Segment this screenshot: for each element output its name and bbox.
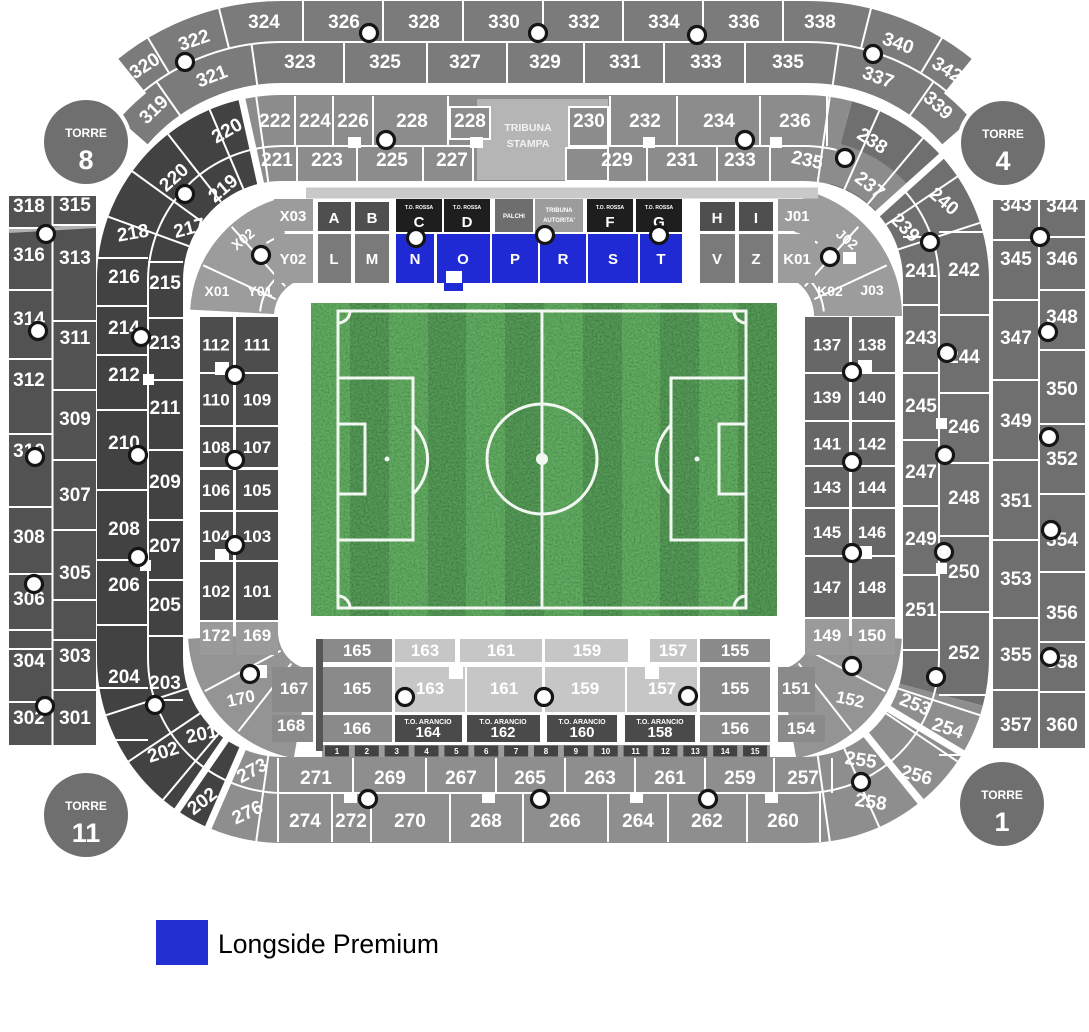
svg-text:149: 149 (813, 626, 841, 645)
svg-text:P: P (510, 251, 520, 268)
svg-text:270: 270 (394, 811, 426, 832)
svg-text:105: 105 (243, 481, 271, 500)
svg-text:260: 260 (767, 811, 799, 832)
svg-text:137: 137 (813, 336, 841, 355)
svg-text:156: 156 (721, 719, 749, 738)
svg-text:O: O (457, 251, 469, 268)
svg-text:112: 112 (202, 336, 229, 355)
svg-text:304: 304 (13, 651, 45, 672)
svg-text:PALCHI: PALCHI (503, 214, 525, 220)
svg-text:147: 147 (813, 578, 841, 597)
svg-text:13: 13 (691, 747, 700, 756)
svg-text:159: 159 (571, 679, 599, 698)
svg-text:241: 241 (905, 261, 937, 282)
svg-text:R: R (558, 251, 569, 268)
svg-text:204: 204 (108, 667, 140, 688)
svg-text:8: 8 (544, 747, 549, 756)
svg-text:J01: J01 (784, 208, 809, 225)
svg-text:T.O. ROSSA: T.O. ROSSA (645, 205, 674, 211)
svg-text:233: 233 (724, 150, 756, 171)
svg-text:111: 111 (244, 336, 271, 355)
svg-text:323: 323 (284, 52, 316, 73)
svg-text:251: 251 (905, 600, 937, 621)
svg-text:263: 263 (584, 768, 616, 789)
svg-text:351: 351 (1000, 491, 1032, 512)
svg-text:247: 247 (905, 462, 937, 483)
svg-text:308: 308 (13, 527, 45, 548)
svg-text:246: 246 (948, 417, 980, 438)
svg-text:TRIBUNA: TRIBUNA (546, 208, 574, 214)
svg-text:146: 146 (858, 523, 886, 542)
svg-text:232: 232 (629, 111, 661, 132)
svg-text:T.O. ROSSA: T.O. ROSSA (596, 205, 625, 211)
svg-text:255: 255 (844, 748, 879, 773)
svg-text:4: 4 (424, 747, 429, 756)
svg-text:226: 226 (337, 111, 369, 132)
svg-text:360: 360 (1046, 715, 1078, 736)
svg-text:T.O. ROSSA: T.O. ROSSA (453, 205, 482, 211)
svg-text:144: 144 (858, 478, 887, 497)
svg-text:TORRE: TORRE (982, 127, 1024, 141)
svg-text:336: 336 (728, 12, 760, 33)
svg-text:139: 139 (813, 388, 841, 407)
svg-text:252: 252 (948, 643, 980, 664)
svg-text:110: 110 (202, 391, 229, 410)
svg-text:12: 12 (661, 747, 670, 756)
svg-text:243: 243 (905, 328, 937, 349)
svg-text:103: 103 (243, 527, 271, 546)
svg-text:151: 151 (782, 679, 810, 698)
svg-text:258: 258 (854, 790, 888, 815)
svg-text:324: 324 (248, 12, 280, 33)
svg-text:231: 231 (666, 150, 698, 171)
svg-text:158: 158 (647, 724, 672, 741)
svg-text:229: 229 (601, 150, 633, 171)
svg-text:T: T (656, 251, 665, 268)
svg-text:266: 266 (549, 811, 581, 832)
svg-text:265: 265 (514, 768, 546, 789)
svg-text:141: 141 (813, 435, 841, 454)
svg-text:211: 211 (150, 398, 181, 419)
svg-text:8: 8 (78, 145, 93, 175)
svg-text:161: 161 (490, 679, 518, 698)
svg-text:K02: K02 (817, 283, 843, 299)
svg-text:347: 347 (1000, 328, 1032, 349)
svg-text:K01: K01 (783, 251, 811, 268)
svg-text:257: 257 (787, 768, 819, 789)
svg-text:225: 225 (376, 150, 408, 171)
svg-text:349: 349 (1000, 411, 1032, 432)
svg-text:228: 228 (396, 111, 428, 132)
svg-text:206: 206 (108, 575, 140, 596)
svg-text:216: 216 (108, 267, 140, 288)
svg-text:215: 215 (149, 273, 181, 294)
svg-text:143: 143 (813, 478, 841, 497)
svg-text:261: 261 (654, 768, 686, 789)
svg-text:6: 6 (484, 747, 489, 756)
svg-text:J03: J03 (860, 282, 884, 298)
svg-text:325: 325 (369, 52, 401, 73)
svg-text:227: 227 (436, 150, 468, 171)
svg-text:344: 344 (1046, 196, 1078, 217)
svg-text:332: 332 (568, 12, 600, 33)
svg-text:172: 172 (202, 626, 230, 645)
svg-text:208: 208 (108, 519, 140, 540)
svg-text:250: 250 (948, 562, 980, 583)
svg-text:262: 262 (691, 811, 723, 832)
svg-text:2: 2 (365, 747, 370, 756)
svg-text:268: 268 (470, 811, 502, 832)
svg-text:311: 311 (60, 328, 91, 349)
svg-text:343: 343 (1000, 195, 1032, 216)
svg-text:Y01: Y01 (248, 283, 273, 299)
svg-text:328: 328 (408, 12, 440, 33)
svg-text:209: 209 (149, 472, 181, 493)
svg-text:165: 165 (343, 679, 371, 698)
svg-text:221: 221 (261, 150, 293, 171)
svg-text:157: 157 (659, 641, 687, 660)
svg-text:346: 346 (1046, 249, 1078, 270)
svg-text:318: 318 (13, 196, 45, 217)
svg-text:AUTORITA': AUTORITA' (543, 218, 575, 224)
svg-text:326: 326 (328, 12, 360, 33)
svg-text:7: 7 (514, 747, 519, 756)
svg-text:303: 303 (59, 646, 91, 667)
svg-text:11: 11 (72, 818, 101, 848)
svg-text:236: 236 (779, 111, 811, 132)
svg-text:264: 264 (622, 811, 654, 832)
svg-text:312: 312 (13, 370, 45, 391)
svg-text:242: 242 (948, 260, 980, 281)
svg-text:338: 338 (804, 12, 836, 33)
svg-text:TRIBUNA: TRIBUNA (504, 122, 552, 134)
svg-text:356: 356 (1046, 603, 1078, 624)
svg-text:Z: Z (751, 251, 760, 268)
svg-text:F: F (605, 214, 614, 231)
svg-text:169: 169 (243, 626, 271, 645)
svg-text:S: S (608, 251, 618, 268)
svg-text:269: 269 (374, 768, 406, 789)
svg-text:203: 203 (149, 673, 181, 694)
svg-text:9: 9 (574, 747, 579, 756)
svg-text:X01: X01 (205, 283, 230, 299)
svg-text:106: 106 (202, 481, 230, 500)
svg-text:305: 305 (59, 563, 91, 584)
svg-text:307: 307 (59, 485, 91, 506)
svg-text:163: 163 (416, 679, 444, 698)
svg-text:267: 267 (445, 768, 477, 789)
svg-text:168: 168 (277, 716, 305, 735)
svg-text:271: 271 (300, 768, 332, 789)
svg-text:223: 223 (311, 150, 343, 171)
svg-text:334: 334 (648, 12, 680, 33)
svg-text:B: B (367, 210, 378, 227)
svg-text:222: 222 (259, 111, 291, 132)
svg-text:159: 159 (573, 641, 601, 660)
svg-text:165: 165 (343, 641, 371, 660)
svg-text:X03: X03 (280, 208, 307, 225)
svg-text:309: 309 (59, 409, 91, 430)
svg-text:316: 316 (13, 245, 45, 266)
svg-text:353: 353 (1000, 569, 1032, 590)
svg-text:157: 157 (648, 679, 676, 698)
svg-text:335: 335 (772, 52, 804, 73)
svg-text:4: 4 (995, 146, 1010, 176)
svg-text:228: 228 (454, 111, 486, 132)
svg-text:138: 138 (858, 336, 886, 355)
svg-text:5: 5 (454, 747, 459, 756)
svg-text:STAMPA: STAMPA (507, 138, 550, 150)
svg-text:352: 352 (1046, 449, 1078, 470)
svg-text:L: L (329, 251, 338, 268)
svg-text:3: 3 (394, 747, 399, 756)
svg-text:167: 167 (280, 679, 308, 698)
svg-text:315: 315 (59, 195, 91, 216)
svg-text:108: 108 (202, 438, 230, 457)
svg-text:207: 207 (149, 536, 181, 557)
svg-text:I: I (754, 210, 758, 227)
svg-text:205: 205 (149, 595, 181, 616)
svg-text:213: 213 (149, 333, 181, 354)
svg-text:T.O. ROSSA: T.O. ROSSA (405, 205, 434, 211)
svg-text:245: 245 (905, 396, 937, 417)
svg-text:155: 155 (721, 641, 749, 660)
svg-text:230: 230 (573, 111, 605, 132)
svg-text:330: 330 (488, 12, 520, 33)
svg-text:V: V (712, 251, 722, 268)
svg-text:355: 355 (1000, 645, 1032, 666)
svg-text:145: 145 (813, 523, 841, 542)
svg-text:109: 109 (243, 391, 271, 410)
svg-text:249: 249 (905, 529, 937, 550)
svg-text:148: 148 (858, 578, 886, 597)
svg-text:1: 1 (335, 747, 340, 756)
svg-text:160: 160 (569, 724, 594, 741)
svg-text:212: 212 (108, 365, 140, 386)
svg-text:164: 164 (415, 724, 441, 741)
svg-text:248: 248 (948, 488, 980, 509)
svg-text:A: A (329, 210, 340, 227)
svg-text:301: 301 (59, 708, 91, 729)
svg-text:259: 259 (724, 768, 756, 789)
svg-text:15: 15 (751, 747, 760, 756)
svg-text:N: N (410, 251, 421, 268)
svg-text:272: 272 (335, 811, 367, 832)
svg-text:329: 329 (529, 52, 561, 73)
svg-text:161: 161 (487, 641, 515, 660)
svg-text:163: 163 (411, 641, 439, 660)
svg-text:142: 142 (858, 435, 886, 454)
svg-text:TORRE: TORRE (981, 788, 1023, 802)
svg-text:107: 107 (243, 438, 271, 457)
svg-text:162: 162 (490, 724, 515, 741)
svg-text:14: 14 (721, 747, 730, 756)
svg-text:1: 1 (994, 807, 1009, 837)
svg-text:D: D (462, 214, 473, 231)
svg-text:154: 154 (787, 719, 816, 738)
svg-text:TORRE: TORRE (65, 126, 107, 140)
svg-text:150: 150 (858, 626, 886, 645)
svg-text:101: 101 (243, 582, 271, 601)
svg-text:166: 166 (343, 719, 371, 738)
svg-text:155: 155 (721, 679, 749, 698)
svg-text:H: H (712, 210, 723, 227)
svg-text:11: 11 (631, 747, 640, 756)
svg-text:333: 333 (690, 52, 722, 73)
svg-text:224: 224 (299, 111, 331, 132)
svg-text:327: 327 (449, 52, 481, 73)
svg-text:234: 234 (703, 111, 735, 132)
svg-text:Y02: Y02 (280, 251, 307, 268)
svg-text:331: 331 (609, 52, 641, 73)
svg-text:Longside Premium: Longside Premium (218, 929, 439, 959)
svg-text:102: 102 (202, 582, 230, 601)
svg-text:350: 350 (1046, 379, 1078, 400)
svg-text:TORRE: TORRE (65, 799, 107, 813)
svg-text:274: 274 (289, 811, 321, 832)
svg-text:345: 345 (1000, 249, 1032, 270)
svg-text:357: 357 (1000, 715, 1032, 736)
svg-text:10: 10 (601, 747, 610, 756)
svg-text:M: M (366, 251, 379, 268)
svg-text:140: 140 (858, 388, 886, 407)
svg-text:313: 313 (59, 248, 91, 269)
